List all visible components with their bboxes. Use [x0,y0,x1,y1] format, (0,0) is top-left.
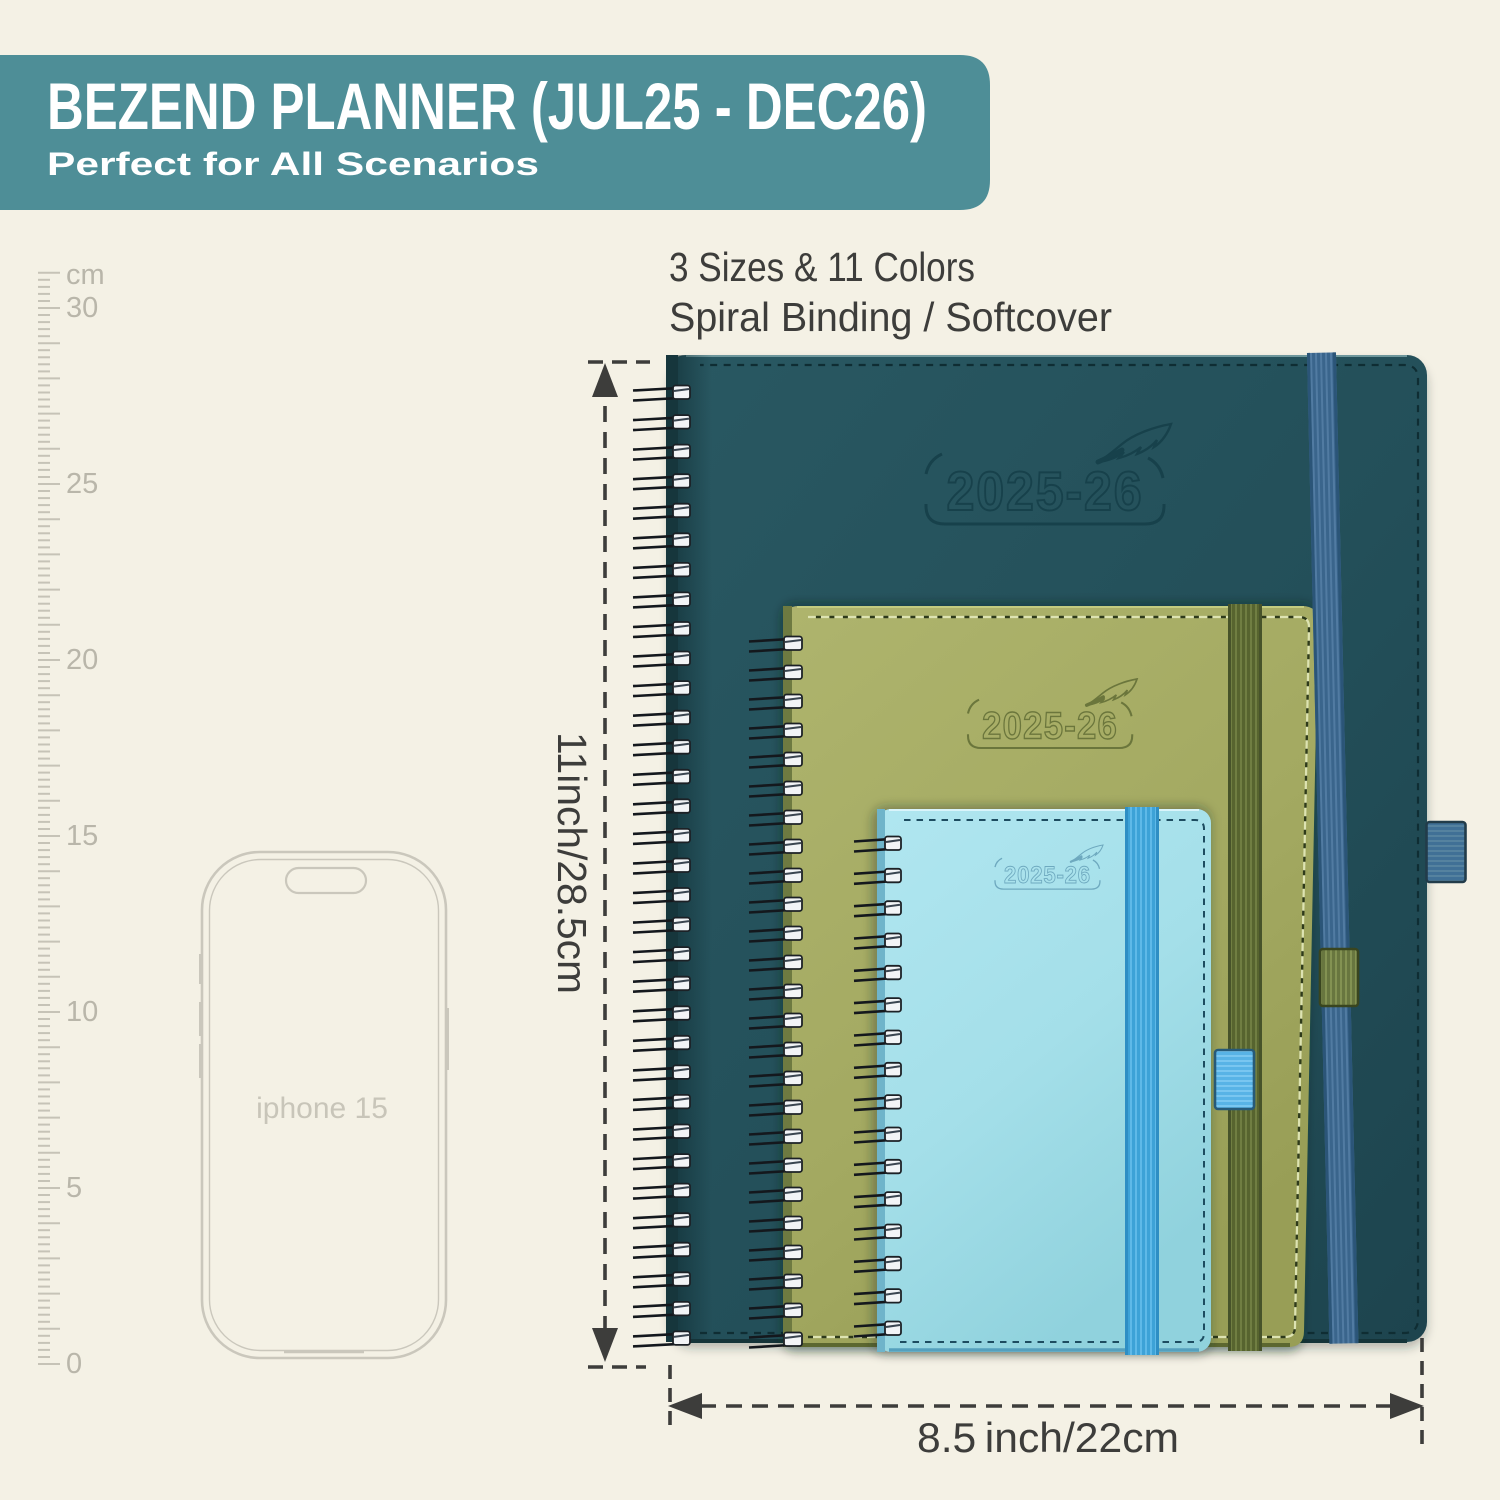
svg-text:0: 0 [66,1348,82,1380]
svg-text:5: 5 [66,1172,82,1204]
svg-text:11inch/28.5cm: 11inch/28.5cm [549,732,595,994]
svg-text:BEZEND PLANNER (JUL25 - DEC26): BEZEND PLANNER (JUL25 - DEC26) [47,69,927,143]
svg-text:3 Sizes & 11 Colors: 3 Sizes & 11 Colors [669,244,975,290]
svg-text:8.5 inch/22cm: 8.5 inch/22cm [917,1414,1179,1461]
svg-text:30: 30 [66,292,98,324]
svg-text:10: 10 [66,996,98,1028]
svg-text:cm: cm [66,259,105,291]
svg-text:25: 25 [66,468,98,500]
svg-text:iphone 15: iphone 15 [256,1092,388,1125]
svg-text:Spiral Binding / Softcover: Spiral Binding / Softcover [669,294,1112,340]
svg-text:20: 20 [66,644,98,676]
svg-text:15: 15 [66,820,98,852]
svg-text:Perfect for All Scenarios: Perfect for All Scenarios [47,146,539,182]
